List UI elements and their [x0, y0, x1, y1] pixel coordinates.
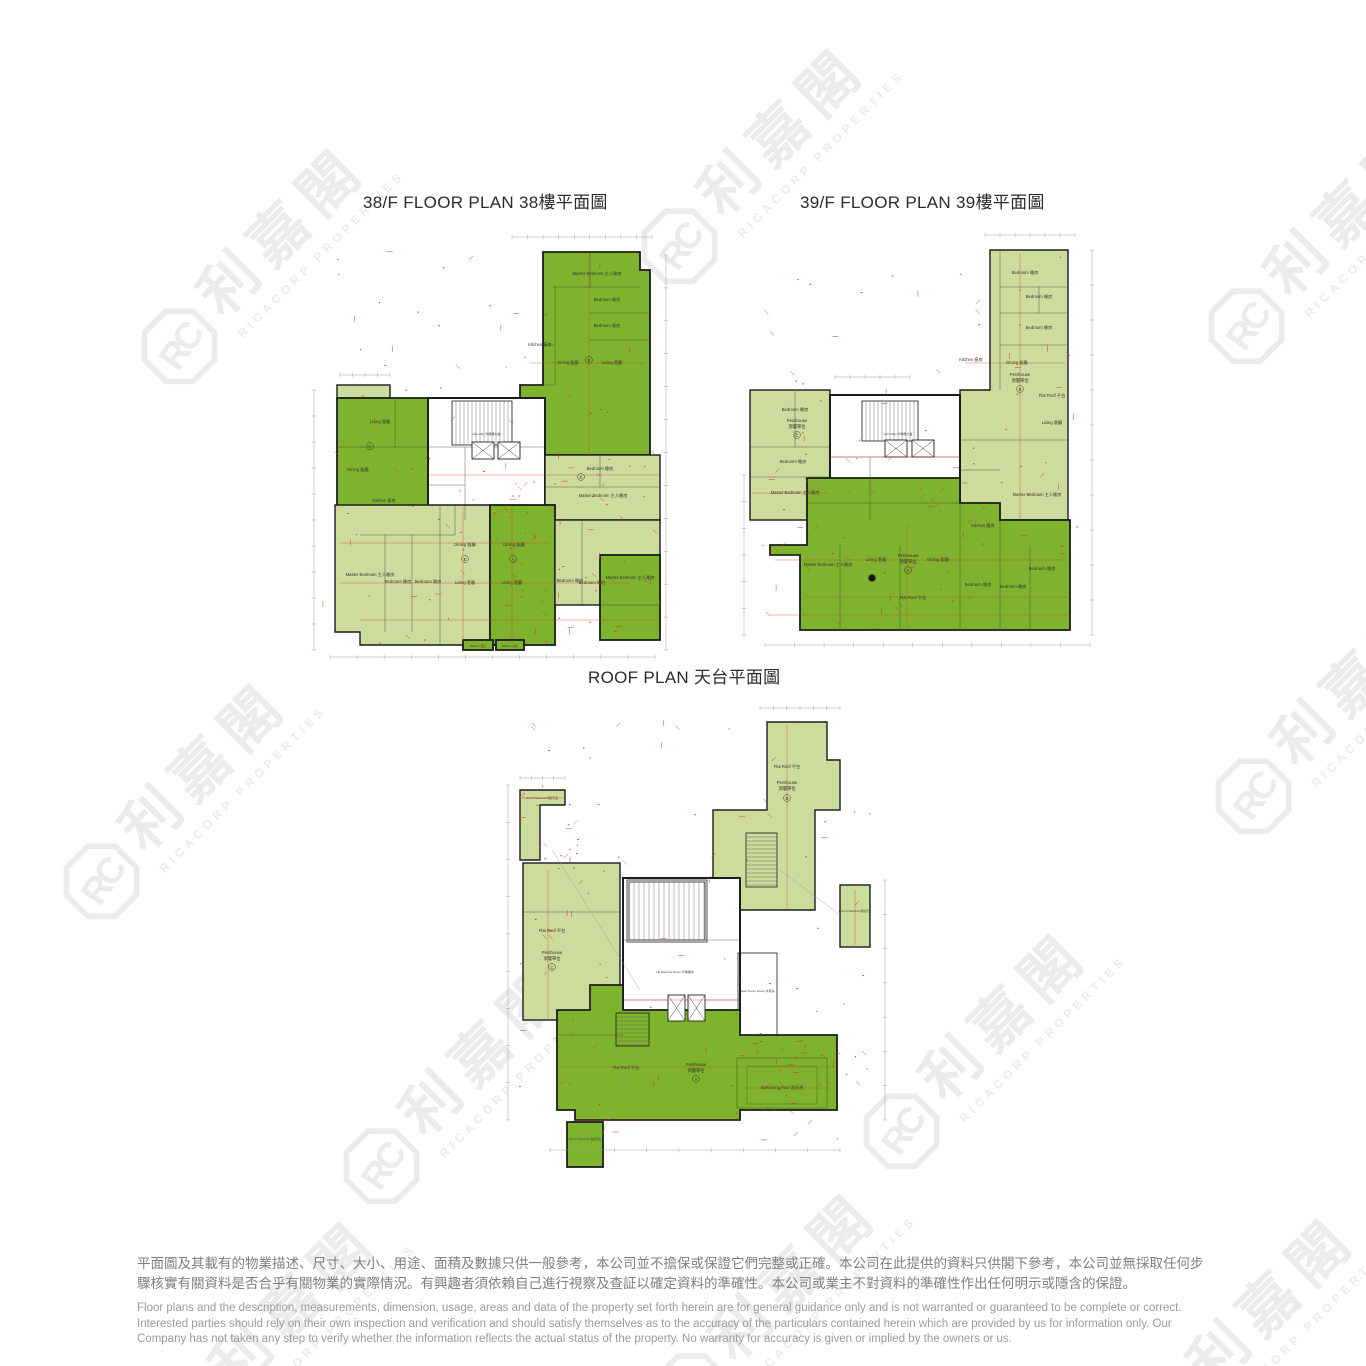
- watermark-english: RICACORP PROPERTIES: [1302, 148, 1366, 321]
- room-label: Living 客廳: [455, 579, 476, 586]
- room-label: Bedroom 睡房: [782, 406, 809, 413]
- room-label: 頂層單位: [1011, 377, 1029, 384]
- title-39f: 39/F FLOOR PLAN 39樓平面圖: [800, 188, 1045, 213]
- room-label: Bedroom 睡房: [1029, 565, 1056, 572]
- room-label: Penthouse: [1010, 372, 1031, 377]
- ricacorp-logo-icon: RC: [325, 1110, 438, 1223]
- room-label: Dining 飯廳: [1006, 359, 1028, 366]
- unit-d-38f: [545, 455, 660, 520]
- room-label: 頂層單位: [687, 1067, 705, 1074]
- room-label: Living 客廳: [370, 418, 391, 425]
- watermark: RC 利嘉閣 RICACORP PROPERTIES: [0, 570, 260, 870]
- disclaimer-chinese-line1: 平面圖及其載有的物業描述、尺寸、大小、用途、面積及數據只供一般參考，本公司並不擔…: [137, 1254, 1243, 1274]
- svg-text:D: D: [579, 475, 582, 480]
- disclaimer-english-line1: Floor plans and the description, measure…: [137, 1301, 1243, 1317]
- stairhood-left: [520, 790, 565, 860]
- disclaimer-english: Floor plans and the description, measure…: [137, 1301, 1243, 1348]
- disclaimer: 平面圖及其載有的物業描述、尺寸、大小、用途、面積及數據只供一般參考，本公司並不擔…: [137, 1254, 1243, 1348]
- ricacorp-logo-icon: RC: [1113, 1360, 1226, 1366]
- room-label: Master Bedroom 主人睡房: [573, 270, 622, 277]
- watermark: RC 利嘉閣 RICACORP PROPERTIES: [1112, 485, 1366, 785]
- room-label: Living 客廳: [602, 359, 623, 366]
- room-label: Master Bedroom 主人睡房: [579, 492, 628, 499]
- ricacorp-logo-icon: RC: [45, 825, 158, 938]
- room-label: Bedroom 睡房: [1026, 324, 1053, 331]
- unit-a-38f: [490, 505, 555, 645]
- room-label: 頂層單位: [543, 955, 561, 962]
- stairhood-bottom: [567, 1122, 603, 1167]
- room-label: Dining 飯廳: [347, 466, 369, 473]
- room-label: Penthouse: [686, 1062, 707, 1067]
- svg-text:RC: RC: [1218, 294, 1279, 357]
- room-label: 頂層單位: [778, 785, 796, 792]
- room-label: Balcony 露台: [502, 644, 518, 648]
- page: RC 利嘉閣 RICACORP PROPERTIES RC 利嘉閣 RICACO…: [0, 0, 1366, 1366]
- floor-plan-38f-drawing: Master Bedroom 主人睡房 Bedroom 睡房 Bedroom 睡…: [300, 225, 680, 665]
- room-label: Living 客廳: [1042, 419, 1063, 426]
- room-label: Dining 飯廳: [503, 541, 525, 548]
- room-label: Penthouse: [898, 553, 919, 558]
- room-label: Master Bedroom 主人睡房: [771, 489, 820, 496]
- room-label: Kitchen 廚房: [528, 341, 552, 348]
- room-label: Bedroom 睡房: [385, 578, 412, 585]
- roof-plan-drawing: Flat Roof 平台 Penthouse 頂層單位 B Roof of St…: [490, 690, 1100, 1220]
- room-label: Dining 飯廳: [454, 541, 476, 548]
- room-label: Bedroom 睡房: [1026, 293, 1053, 300]
- watermark-chinese: 利嘉閣: [1263, 572, 1366, 776]
- disclaimer-chinese-line2: 驟核實有關資料是否合乎有關物業的實際情況。有興趣者須依賴自己進行視察及查証以確定…: [137, 1274, 1243, 1294]
- disclaimer-english-line2: Interested parties should rely on their …: [137, 1317, 1243, 1333]
- room-label: Bedroom 睡房: [1000, 583, 1027, 590]
- watermark: RC 利嘉閣 RICACORP PROPERTIES: [1105, 15, 1366, 315]
- room-label: Bedroom 睡房: [579, 579, 606, 586]
- room-label: Bedroom 睡房: [594, 296, 621, 303]
- disclaimer-english-line3: Company has not taken any step to verify…: [137, 1332, 1243, 1348]
- pump-room: [738, 953, 777, 1038]
- ricacorp-logo-icon: RC: [123, 290, 236, 403]
- watermark-english: RICACORP PROPERTIES: [735, 68, 908, 241]
- watermark-text: 利嘉閣 RICACORP PROPERTIES: [1256, 102, 1366, 320]
- room-label: Master Bedroom 主人睡房: [346, 571, 395, 578]
- floor-plan-39f-drawing: Bedroom 睡房 Bedroom 睡房 Bedroom 睡房 Kitchen…: [740, 225, 1100, 665]
- watermark-english: RICACORP PROPERTIES: [1309, 618, 1366, 791]
- svg-text:RC: RC: [1225, 764, 1286, 827]
- ricacorp-logo-icon: RC: [1197, 740, 1310, 853]
- room-label: Flat Roof 平台: [1039, 392, 1066, 399]
- room-label: Kitchen 廚房: [971, 522, 995, 529]
- room-label: Dining 飯廳: [557, 359, 579, 366]
- watermark-text: 利嘉閣 RICACORP PROPERTIES: [111, 657, 329, 875]
- unit-corner-38f: [600, 555, 660, 640]
- room-label: Dining 飯廳: [927, 556, 949, 563]
- svg-text:C: C: [368, 444, 371, 449]
- room-label: Balcony 露台: [470, 644, 486, 648]
- svg-text:RC: RC: [663, 1359, 724, 1366]
- room-label: Living 客廳: [866, 556, 887, 563]
- watermark-inner: RC 利嘉閣 RICACORP PROPERTIES: [0, 508, 322, 932]
- room-label: Bedroom 睡房: [965, 581, 992, 588]
- watermark-chinese: 利嘉閣: [1256, 102, 1366, 306]
- room-label: 頂層單位: [899, 558, 917, 565]
- svg-text:C: C: [550, 965, 553, 970]
- title-38f: 38/F FLOOR PLAN 38樓平面圖: [363, 188, 608, 213]
- penthouse-b-39f: [960, 250, 1068, 520]
- ricacorp-logo-icon: RC: [135, 1363, 248, 1366]
- room-label: Water Pump Room 水泵房: [739, 988, 774, 993]
- room-label: Living 客廳: [502, 579, 523, 586]
- room-label: Master Bedroom 主人睡房: [804, 561, 853, 568]
- room-label: Penthouse: [542, 950, 563, 955]
- svg-text:A: A: [695, 1077, 698, 1082]
- svg-text:RC: RC: [73, 849, 134, 912]
- column-dot: [868, 574, 875, 581]
- room-label: Penthouse: [787, 418, 808, 423]
- room-label: Lift Lobby 升降機大堂: [472, 431, 501, 436]
- svg-text:RC: RC: [151, 314, 212, 377]
- watermark-english: RICACORP PROPERTIES: [1225, 1238, 1366, 1366]
- room-label: Lift Lobby 升降機大堂: [884, 431, 913, 436]
- room-label: Bedroom 睡房: [1012, 269, 1039, 276]
- svg-text:RC: RC: [353, 1134, 414, 1197]
- room-label: Roof of Stairhood 梯屋天台: [569, 1137, 602, 1141]
- room-label: Kitchen 廚房: [372, 497, 396, 504]
- watermark-chinese: 利嘉閣: [111, 657, 315, 861]
- room-label: Kitchen 廚房: [959, 356, 983, 363]
- room-label: Bedroom 睡房: [780, 458, 807, 465]
- room-label: Bedroom 睡房: [587, 465, 614, 472]
- room-label: 頂層單位: [788, 423, 806, 430]
- room-label: Flat Roof 平台: [900, 594, 927, 601]
- room-label: Swimming Pool 游泳池: [761, 1084, 804, 1091]
- title-roof: ROOF PLAN 天台平面圖: [588, 663, 780, 688]
- room-label: Bedroom 睡房: [594, 322, 621, 329]
- ricacorp-logo-icon: RC: [1190, 270, 1303, 383]
- room-label: Flat Roof 平台: [613, 1064, 640, 1071]
- room-label: Bedroom 睡房: [415, 578, 442, 585]
- watermark-text: 利嘉閣 RICACORP PROPERTIES: [1263, 572, 1366, 790]
- watermark-english: RICACORP PROPERTIES: [157, 703, 330, 876]
- watermark: RC 利嘉閣 RICACORP PROPERTIES: [38, 35, 338, 335]
- room-label: Master Bedroom 主人睡房: [606, 574, 655, 581]
- room-label: Lift Machine Room 升降機房: [656, 969, 694, 974]
- room-label: Penthouse: [777, 780, 798, 785]
- svg-text:E: E: [464, 557, 467, 562]
